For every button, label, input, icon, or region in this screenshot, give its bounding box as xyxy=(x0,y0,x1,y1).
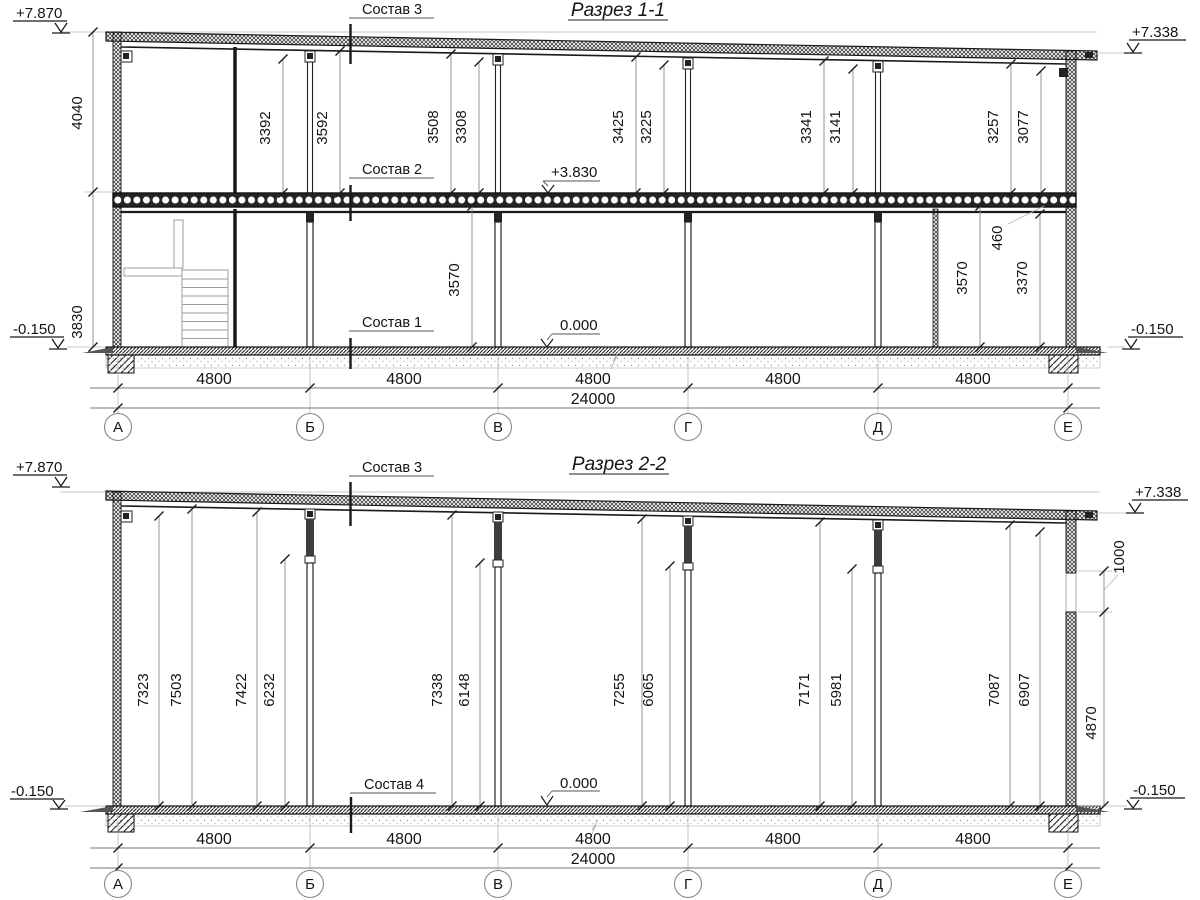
dim-label: 3508 xyxy=(425,110,442,143)
foundation-right xyxy=(1049,814,1078,832)
dim-label: 6232 xyxy=(261,673,278,706)
axis-bubbles: А Б В Г Д Е xyxy=(105,414,1082,441)
bay-dim-label: 4800 xyxy=(575,831,611,848)
dim-label: 6907 xyxy=(1016,673,1033,706)
dim-label: 3425 xyxy=(610,110,627,143)
dim-label: 7503 xyxy=(168,673,185,706)
elevation-marks xyxy=(10,21,1186,349)
bay-dim-label: 4800 xyxy=(955,371,991,388)
dim-label: 3077 xyxy=(1015,110,1032,143)
axis-label: Г xyxy=(684,419,692,436)
axis-label: Е xyxy=(1063,876,1073,893)
dim-label: 7323 xyxy=(135,673,152,706)
roof-edge-cap xyxy=(1085,512,1093,518)
dim-label: 7171 xyxy=(796,673,813,706)
note-label: Состав 2 xyxy=(362,162,422,178)
elevation-label: +7.870 xyxy=(16,459,62,476)
axis-label: В xyxy=(493,419,503,436)
section-2-2: Разрез 2-2 +7.870 +7.338 -0.150 -0.150 0… xyxy=(10,454,1188,898)
dim-label: 3392 xyxy=(257,111,274,144)
axis-label: А xyxy=(113,419,123,436)
axis-label: Д xyxy=(873,419,883,436)
dim-label: 3570 xyxy=(446,263,463,296)
bay-dim-label: 4800 xyxy=(386,831,422,848)
section-1-1: Разрез 1-1 +7.870 +7.338 -0.150 -0.150 +… xyxy=(10,0,1186,441)
dim-label: 7338 xyxy=(429,673,446,706)
note-label: Состав 1 xyxy=(362,315,422,331)
total-dim-label: 24000 xyxy=(571,391,616,408)
axis-label: Б xyxy=(305,419,315,436)
roof-edge-cap xyxy=(1085,52,1093,58)
elevation-label: +3.830 xyxy=(551,164,597,181)
wall-axis-a xyxy=(113,492,121,806)
partition-d-e xyxy=(933,209,938,347)
dim-label: 3570 xyxy=(954,261,971,294)
elevation-label: -0.150 xyxy=(1131,321,1174,338)
dim-label: 7422 xyxy=(233,673,250,706)
bay-dim-label: 4800 xyxy=(196,831,232,848)
wall-axis-e-bottom xyxy=(1066,612,1076,806)
dim-label: 3370 xyxy=(1014,261,1031,294)
foundation-left xyxy=(108,814,134,832)
dim-label: 1000 xyxy=(1111,540,1128,573)
roof-structure xyxy=(60,491,1100,523)
dim-label: 6065 xyxy=(640,673,657,706)
axis-bubbles: А Б В Г Д Е xyxy=(105,871,1082,898)
dim-label: 3308 xyxy=(453,110,470,143)
wall-axis-a xyxy=(113,32,121,347)
apron-left xyxy=(80,806,113,812)
elevation-label: 0.000 xyxy=(560,775,598,792)
roof-structure xyxy=(60,32,1097,64)
ground-slab xyxy=(82,347,1108,373)
note-label: Состав 3 xyxy=(362,2,422,18)
walls xyxy=(113,32,1076,347)
axis-label: Б xyxy=(305,876,315,893)
axis-label: Е xyxy=(1063,419,1073,436)
bay-dim-label: 4800 xyxy=(955,831,991,848)
floor-slab xyxy=(113,193,1076,222)
note-label: Состав 3 xyxy=(362,460,422,476)
axis-label: Д xyxy=(873,876,883,893)
dim-label: 4040 xyxy=(69,96,86,129)
elevation-label: -0.150 xyxy=(13,321,56,338)
dim-label: 6148 xyxy=(456,673,473,706)
blueprint-page: Разрез 1-1 +7.870 +7.338 -0.150 -0.150 +… xyxy=(0,0,1200,900)
dim-label: 3341 xyxy=(798,110,815,143)
elevation-label: +7.338 xyxy=(1132,24,1178,41)
total-dim-label: 24000 xyxy=(571,851,616,868)
elevation-label: +7.338 xyxy=(1135,484,1181,501)
bay-dim-label: 4800 xyxy=(765,371,801,388)
dim-label: 7255 xyxy=(611,673,628,706)
dim-label: 3141 xyxy=(827,110,844,143)
dim-label: 7087 xyxy=(986,673,1003,706)
elevation-label: -0.150 xyxy=(11,783,54,800)
section-title: Разрез 1-1 xyxy=(571,0,665,21)
dim-label: 4870 xyxy=(1083,706,1100,739)
dim-label: 3592 xyxy=(314,111,331,144)
staircase xyxy=(124,220,228,347)
columns xyxy=(305,509,883,806)
axis-label: А xyxy=(113,876,123,893)
axis-label: В xyxy=(493,876,503,893)
elevation-label: +7.870 xyxy=(16,5,62,22)
section-title: Разрез 2-2 xyxy=(572,454,667,475)
bay-dim-label: 4800 xyxy=(575,371,611,388)
bay-dim-label: 4800 xyxy=(196,371,232,388)
axis-label: Г xyxy=(684,876,692,893)
elevation-label: 0.000 xyxy=(560,317,598,334)
technical-drawing: Разрез 1-1 +7.870 +7.338 -0.150 -0.150 +… xyxy=(0,0,1200,900)
wall-axis-e-top xyxy=(1066,511,1076,573)
bay-dim-label: 4800 xyxy=(765,831,801,848)
dim-label: 3225 xyxy=(638,110,655,143)
foundation-right xyxy=(1049,355,1078,373)
note-label: Состав 4 xyxy=(364,777,424,793)
dim-label: 5981 xyxy=(828,673,845,706)
elevation-marks xyxy=(10,475,1188,809)
bay-dim-label: 4800 xyxy=(386,371,422,388)
dim-label: 460 xyxy=(989,225,1006,250)
foundation-left xyxy=(108,355,134,373)
dim-label: 3257 xyxy=(985,110,1002,143)
elevation-label: -0.150 xyxy=(1133,782,1176,799)
dim-label: 3830 xyxy=(69,305,86,338)
window-opening xyxy=(1066,573,1076,612)
